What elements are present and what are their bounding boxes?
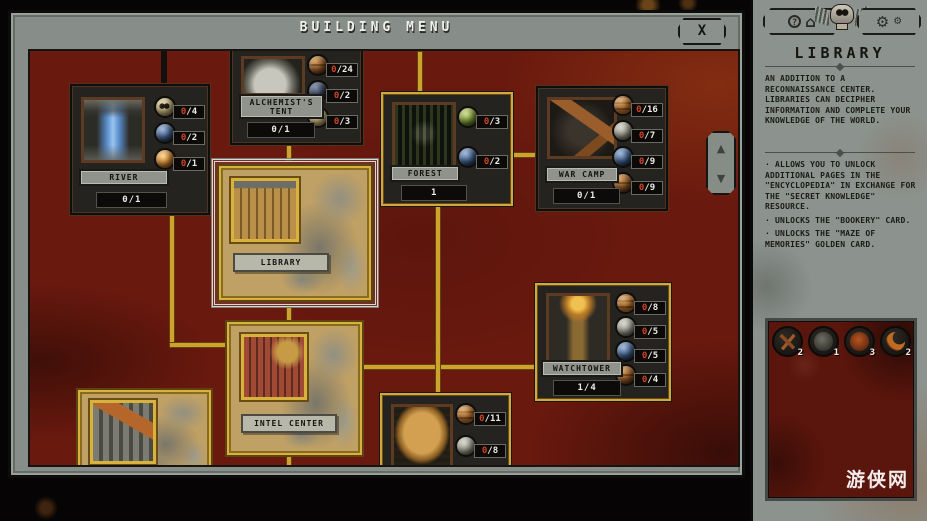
cost-row: 0/3 <box>457 104 508 130</box>
building-description: AN ADDITION TO A RECONNAISSANCE CENTER. … <box>765 74 917 130</box>
card-count-plaque: 1/4 <box>553 380 622 396</box>
card-name-plaque: ALCHEMIST'S TENT <box>239 94 324 119</box>
cost-value: 0/11 <box>474 412 506 426</box>
cost-value: 0/2 <box>476 155 508 169</box>
resource-count: 2 <box>906 348 911 358</box>
war-camp-card-art <box>547 97 617 159</box>
cost-value: 0/5 <box>634 349 666 363</box>
scroll-down-icon[interactable]: ▼ <box>717 173 725 184</box>
cost-row: 0/2 <box>154 120 205 146</box>
resource-count: 3 <box>870 348 875 358</box>
cost-row: 0/7 <box>612 118 663 144</box>
building-tree-board: 0/4 0/2 0/1 RIVER 0/1 <box>28 49 740 467</box>
building-card-library[interactable]: LIBRARY <box>219 166 371 300</box>
gear-small-icon: ⚙ <box>893 16 902 27</box>
card-name-plaque: WATCHTOWER <box>541 360 623 377</box>
board-scroll-control: ▲ ▼ <box>706 131 736 195</box>
connector-line <box>286 454 292 467</box>
building-card-forest[interactable]: 0/3 0/2 FOREST 1 <box>381 92 513 206</box>
building-card-intel-center[interactable]: INTEL CENTER <box>227 322 362 455</box>
cost-row: 0/11 <box>455 401 506 427</box>
resource-count: 1 <box>834 348 839 358</box>
card-name-plaque: FOREST <box>390 165 460 182</box>
tent-card-art <box>391 404 453 467</box>
window-title: BUILDING MENU <box>11 20 742 35</box>
game-screen: BUILDING MENU X 0/4 <box>0 0 927 521</box>
alchemists-tent-card-art <box>241 56 305 96</box>
building-menu-window: BUILDING MENU X 0/4 <box>8 10 745 478</box>
gear-icon: ⚙ <box>876 13 889 31</box>
cost-row: 0/16 <box>612 92 663 118</box>
site-watermark: 游侠网 <box>846 465 909 492</box>
building-card-alchemists-tent[interactable]: 0/24 0/2 0/3 ALCHEMIST'S TENT 0/1 <box>230 49 363 145</box>
card-count-plaque: 0/1 <box>553 188 620 204</box>
cost-value: 0/3 <box>476 115 508 129</box>
scroll-up-icon[interactable]: ▲ <box>717 143 725 154</box>
cost-row <box>455 463 506 467</box>
card-name-plaque: LIBRARY <box>233 253 329 272</box>
card-count-plaque: 0/1 <box>247 122 314 138</box>
selected-card-frame: LIBRARY <box>212 159 378 307</box>
connector-line <box>161 51 167 86</box>
cost-value: 0/24 <box>326 63 358 77</box>
cost-row: 0/8 <box>615 291 666 315</box>
cost-value: 0/5 <box>634 325 666 339</box>
building-card-river[interactable]: 0/4 0/2 0/1 RIVER 0/1 <box>70 84 210 215</box>
cost-value: 0/8 <box>634 301 666 315</box>
cost-row: 0/4 <box>154 94 205 120</box>
horn-resource-icon: 2 <box>880 326 911 357</box>
help-icon: ? <box>788 15 801 28</box>
connector-line <box>361 364 536 370</box>
cost-value: 0/8 <box>474 444 506 458</box>
twigs-resource-icon: 2 <box>772 326 803 357</box>
cost-row: 0/2 <box>457 144 508 170</box>
cost-value: 0/9 <box>631 181 663 195</box>
divider <box>765 64 915 69</box>
watchtower-card-art <box>546 293 610 363</box>
village-card-art <box>90 400 156 464</box>
resource-tray: 2 1 3 2 游侠网 <box>765 318 917 501</box>
building-card-bottom-left[interactable] <box>78 390 211 467</box>
connector-line <box>169 342 229 348</box>
divider <box>765 150 915 155</box>
building-card-watchtower[interactable]: 0/8 0/5 0/5 0/4 WATCHTOWER <box>535 283 671 401</box>
cost-row: 0/5 <box>615 315 666 339</box>
blue-orb-resource-icon <box>455 465 477 467</box>
settings-button[interactable]: ⚙ ⚙ <box>857 8 921 35</box>
card-count-plaque: 0/1 <box>96 192 167 208</box>
cost-value: 0/1 <box>173 157 205 171</box>
building-effects-list: · ALLOWS YOU TO UNLOCK ADDITIONAL PAGES … <box>765 160 917 253</box>
sidebar-title: LIBRARY <box>753 44 927 62</box>
cost-row: 0/9 <box>612 144 663 170</box>
effect-bullet: · UNLOCKS THE "MAZE OF MEMORIES" GOLDEN … <box>765 229 917 250</box>
description-paragraph: AN ADDITION TO A RECONNAISSANCE CENTER. … <box>765 74 917 127</box>
cost-row: 0/24 <box>307 52 358 78</box>
forest-card-art <box>392 102 456 172</box>
effect-bullet: · ALLOWS YOU TO UNLOCK ADDITIONAL PAGES … <box>765 160 917 213</box>
rock-resource-icon: 1 <box>808 326 839 357</box>
river-card-art <box>81 97 145 163</box>
info-sidebar: ? ⌂ ⚙ ⚙ LIBRARY AN ADDITION TO A RECONNA… <box>750 0 927 521</box>
card-name-plaque: INTEL CENTER <box>241 414 337 433</box>
card-name-plaque: WAR CAMP <box>545 166 619 183</box>
cost-value: 0/2 <box>173 131 205 145</box>
card-name-plaque: RIVER <box>79 169 169 186</box>
connector-line <box>169 214 175 348</box>
cost-value: 0/3 <box>326 115 358 129</box>
card-count-plaque: 1 <box>401 185 468 201</box>
cost-value: 0/16 <box>631 103 663 117</box>
cost-value: 0/9 <box>631 155 663 169</box>
cost-value: 0/4 <box>634 373 666 387</box>
building-card-bottom-center[interactable]: 0/11 0/8 <box>380 393 511 467</box>
effect-bullet: · UNLOCKS THE "BOOKERY" CARD. <box>765 216 917 227</box>
connector-line <box>435 204 441 394</box>
building-card-war-camp[interactable]: 0/16 0/7 0/9 0/9 WAR CAMP <box>536 86 668 211</box>
connector-line <box>417 51 423 93</box>
meat-resource-icon: 3 <box>844 326 875 357</box>
intel-center-card-art <box>241 334 307 400</box>
connector-line <box>286 306 292 323</box>
cost-value: 0/2 <box>326 89 358 103</box>
library-card-art <box>231 178 299 242</box>
resource-count: 2 <box>798 348 803 358</box>
cost-value: 0/7 <box>631 129 663 143</box>
cost-value: 0/4 <box>173 105 205 119</box>
close-button[interactable]: X <box>678 18 726 45</box>
connector-line <box>512 152 537 158</box>
cost-row: 0/8 <box>455 433 506 459</box>
